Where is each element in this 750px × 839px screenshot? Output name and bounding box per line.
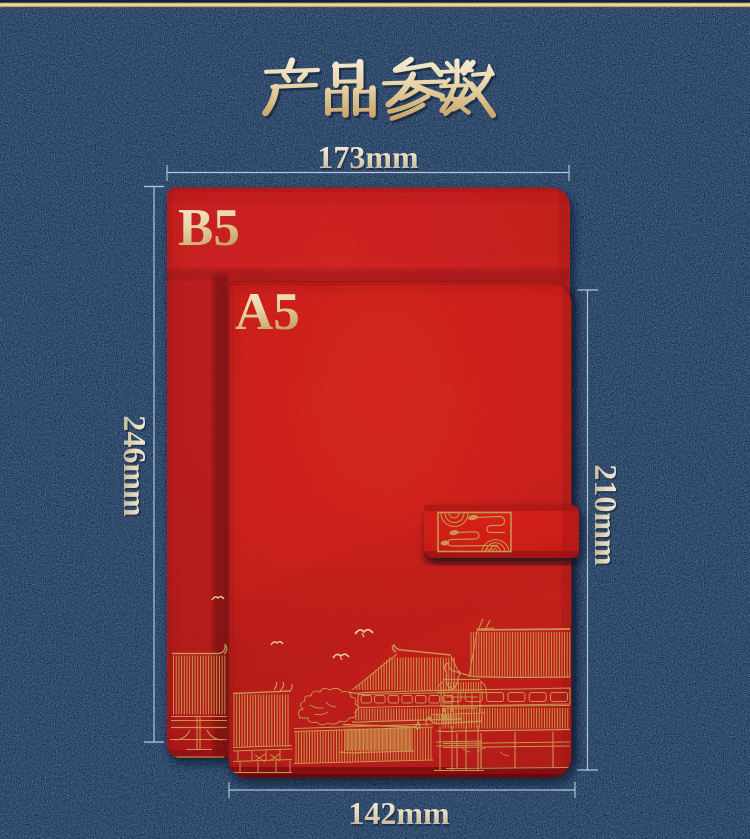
svg-text:142mm: 142mm — [348, 795, 450, 831]
svg-text:A5: A5 — [235, 283, 300, 341]
svg-text:B5: B5 — [178, 199, 240, 257]
svg-text:210mm: 210mm — [588, 464, 624, 566]
svg-text:246mm: 246mm — [117, 415, 153, 517]
svg-text:173mm: 173mm — [317, 139, 419, 175]
